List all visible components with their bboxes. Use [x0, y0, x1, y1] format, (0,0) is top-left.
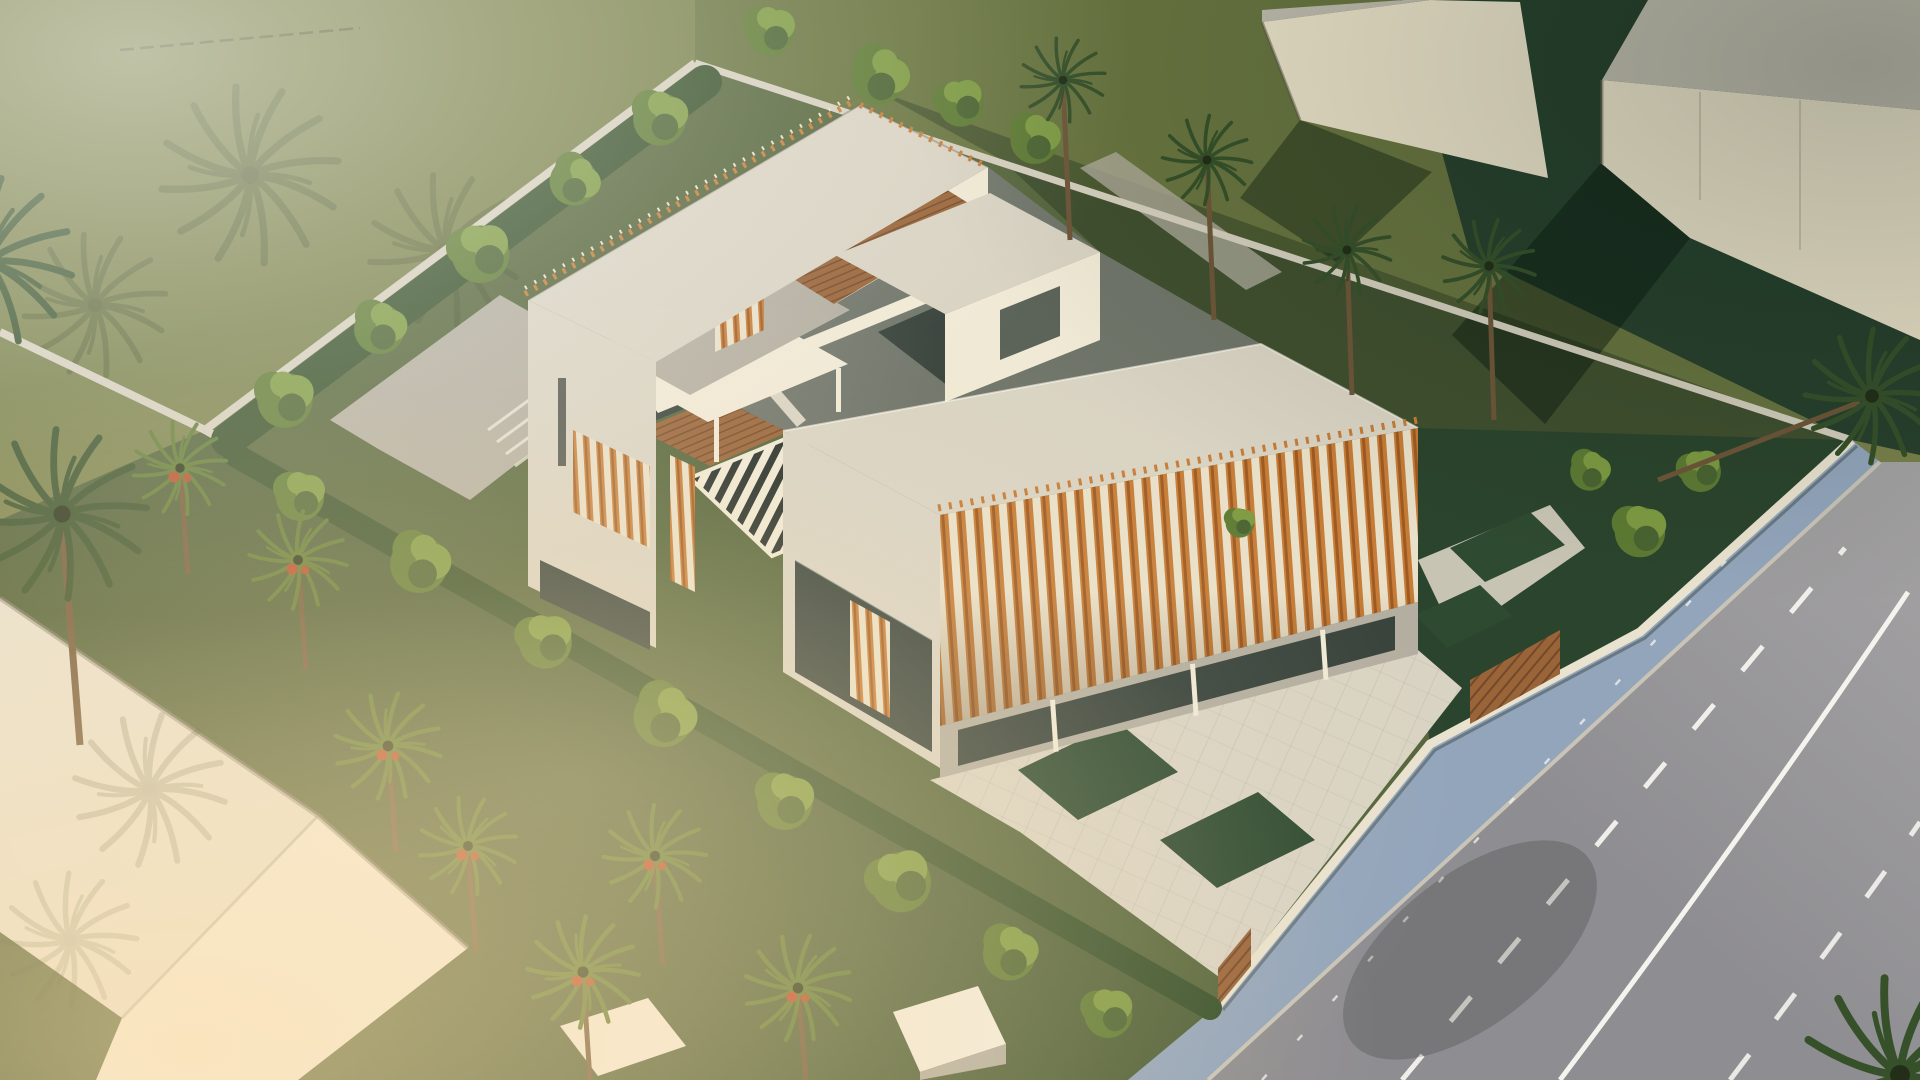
sun-glare-bottom-left — [0, 0, 1920, 1080]
render-viewport — [0, 0, 1920, 1080]
aerial-render-svg — [0, 0, 1920, 1080]
lighting-overlays — [0, 0, 1920, 1080]
